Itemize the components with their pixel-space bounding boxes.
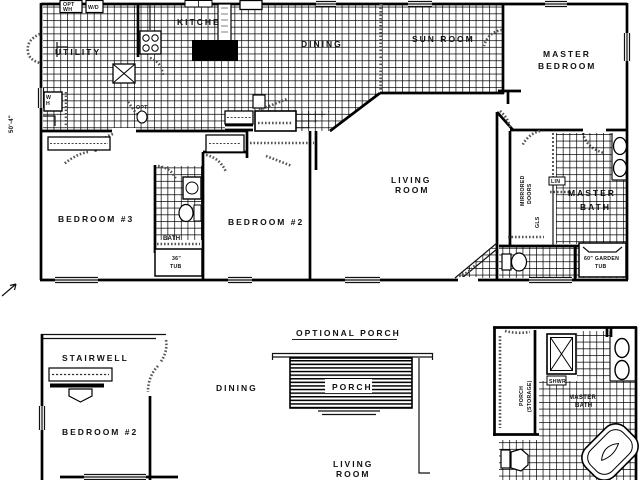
svg-text:SHWR: SHWR: [549, 379, 566, 385]
svg-text:DOORS: DOORS: [527, 183, 533, 204]
svg-text:STAIRWELL: STAIRWELL: [62, 353, 129, 363]
svg-text:PORCH: PORCH: [332, 382, 373, 392]
svg-text:60" GARDEN: 60" GARDEN: [584, 256, 619, 262]
svg-text:LIVING: LIVING: [391, 175, 431, 185]
svg-text:ROOM: ROOM: [336, 469, 370, 479]
svg-text:MIRRORED: MIRRORED: [520, 175, 526, 206]
svg-text:UTILITY: UTILITY: [55, 47, 101, 57]
svg-text:OPTIONAL PORCH: OPTIONAL PORCH: [296, 328, 401, 338]
svg-text:W/D: W/D: [88, 5, 99, 11]
svg-text:DINING: DINING: [216, 383, 258, 393]
svg-text:H: H: [46, 101, 50, 107]
svg-text:DINING: DINING: [301, 39, 343, 49]
svg-text:50'-4": 50'-4": [9, 115, 15, 133]
svg-text:BATH: BATH: [575, 403, 592, 409]
svg-text:TUB: TUB: [595, 264, 607, 270]
svg-text:LIN: LIN: [551, 179, 560, 185]
svg-text:36": 36": [172, 256, 181, 262]
svg-text:OPT: OPT: [136, 105, 148, 111]
svg-text:ROOM: ROOM: [395, 185, 429, 195]
svg-text:PORCH: PORCH: [519, 386, 525, 406]
svg-text:BEDROOM #3: BEDROOM #3: [58, 214, 134, 224]
svg-text:BATH: BATH: [580, 202, 611, 212]
svg-text:MASTER: MASTER: [543, 49, 591, 59]
svg-text:MASTER: MASTER: [569, 395, 596, 401]
svg-text:WH: WH: [63, 7, 72, 13]
svg-text:BATH: BATH: [163, 236, 180, 242]
svg-text:BEDROOM: BEDROOM: [538, 61, 596, 71]
svg-text:(STORAGE): (STORAGE): [527, 380, 533, 412]
svg-text:SUN ROOM: SUN ROOM: [412, 34, 475, 44]
svg-text:LIVING: LIVING: [333, 459, 373, 469]
svg-text:MASTER: MASTER: [568, 188, 616, 198]
svg-text:GLS: GLS: [535, 216, 541, 228]
svg-text:TUB: TUB: [170, 264, 182, 270]
svg-text:BEDROOM #2: BEDROOM #2: [62, 427, 138, 437]
svg-text:BEDROOM #2: BEDROOM #2: [228, 217, 304, 227]
